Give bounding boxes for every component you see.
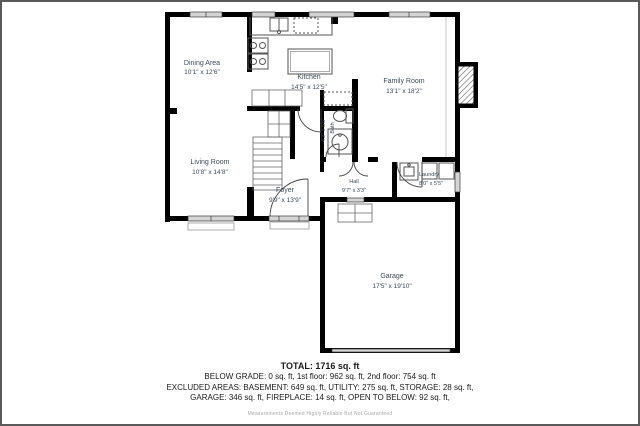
garage-entry-door <box>347 198 364 202</box>
floor-plan-page: Dining Area 10'1" x 12'6" Kitchen 14'5" … <box>0 0 640 426</box>
summary-line-2: EXCLUDED AREAS: BASEMENT: 649 sq. ft, UT… <box>2 383 638 394</box>
summary-line-3: GARAGE: 346 sq. ft, FIREPLACE: 14 sq. ft… <box>2 393 638 404</box>
window <box>389 12 430 17</box>
wall <box>247 187 254 220</box>
wall <box>422 157 455 162</box>
fireplace-icon <box>458 66 474 104</box>
room-dims-hall: 9'7" x 3'3" <box>342 188 366 194</box>
room-dims-kitchen: 14'5" x 12'5" <box>291 84 327 91</box>
room-label-garage: Garage <box>380 273 403 280</box>
room-label-bath: Bath <box>330 122 336 133</box>
toilet-tank-icon <box>346 109 353 123</box>
room-dims-foyer: 9'9" x 13'9" <box>269 197 302 204</box>
wall <box>455 104 478 108</box>
toilet-icon <box>334 111 347 122</box>
wall-stub <box>165 108 177 114</box>
step <box>270 222 309 229</box>
room-label-kitchen: Kitchen <box>297 74 320 81</box>
stair-landing <box>252 90 302 106</box>
kitchen-fixtures <box>248 17 352 105</box>
dryer-icon <box>439 163 454 179</box>
room-label-dining: Dining Area <box>184 60 220 67</box>
room-label-laundry: Laundry <box>419 172 439 178</box>
wall <box>392 162 397 197</box>
total-area-text: TOTAL: 1716 sq. ft <box>2 361 638 372</box>
kitchen-island-inner <box>291 52 330 72</box>
window <box>309 12 354 17</box>
wall <box>474 62 478 108</box>
faucet-icon <box>277 30 280 33</box>
burner-icon <box>260 43 266 49</box>
area-summary: TOTAL: 1716 sq. ft BELOW GRADE: 0 sq. ft… <box>2 361 638 404</box>
room-dims-laundry: 8'0" x 5'5" <box>419 181 443 187</box>
room-label-hall: Hall <box>349 179 358 185</box>
wall <box>165 12 170 222</box>
wall <box>368 157 378 162</box>
wall <box>247 106 300 111</box>
room-label-family: Family Room <box>383 78 424 85</box>
wall <box>165 216 188 221</box>
room-dims-garage: 17'5" x 19'10" <box>372 283 412 290</box>
room-dims-bath: 4'2" x 5'5" <box>321 118 327 142</box>
pantry <box>324 92 352 105</box>
room-label-living: Living Room <box>191 159 230 166</box>
room-label-foyer: Foyer <box>276 187 295 194</box>
room-dims-living: 10'8" x 14'8" <box>192 169 228 176</box>
disclaimer-text: Measurements Deemed Highly Reliable But … <box>2 411 638 417</box>
faucet-icon <box>408 164 410 166</box>
faucet-icon <box>339 134 342 137</box>
wall <box>320 157 326 162</box>
garage-door <box>332 349 450 352</box>
window <box>252 12 275 17</box>
step <box>188 223 234 230</box>
stair-run <box>253 137 282 190</box>
window <box>455 172 460 192</box>
wall <box>275 12 309 17</box>
wall-stub <box>320 162 324 172</box>
burner-icon <box>260 59 266 65</box>
hall-double-door-arc <box>339 162 353 176</box>
wall <box>364 197 460 202</box>
counter <box>250 17 332 35</box>
kitchen-door-arc <box>298 109 321 132</box>
room-dims-family: 13'1" x 18'2" <box>386 88 422 95</box>
summary-line-1: BELOW GRADE: 0 sq. ft, 1st floor: 962 sq… <box>2 372 638 383</box>
room-dims-dining: 10'1" x 12'6" <box>184 69 220 76</box>
wall <box>290 111 295 159</box>
hall-double-door-arc <box>354 162 368 176</box>
wall <box>354 12 389 17</box>
dishwasher-icon <box>294 18 318 33</box>
front-door-sill <box>269 216 309 221</box>
wall <box>320 197 325 353</box>
exterior-steps <box>188 222 309 230</box>
laundry-sink-basin <box>404 167 414 176</box>
